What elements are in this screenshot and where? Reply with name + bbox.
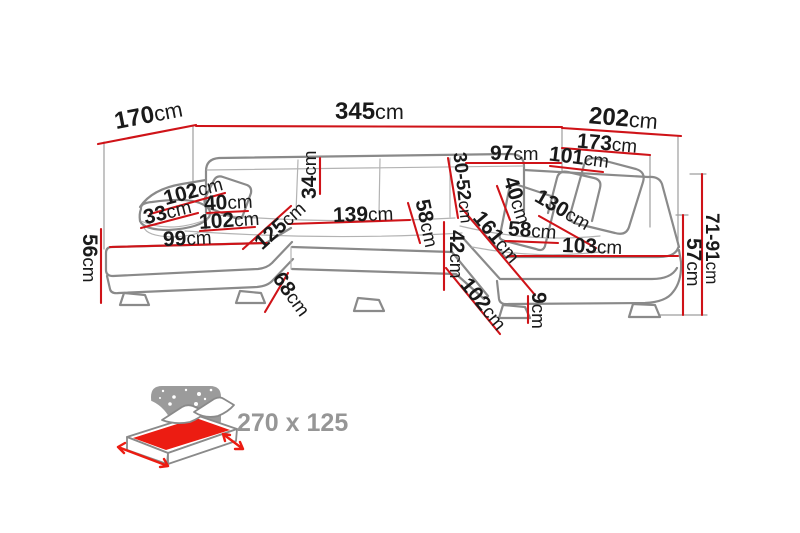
dim-back-cushion: 34cm (298, 150, 321, 199)
sofa-dimension-diagram: 170cm 345cm 202cm 173cm 97cm 101cm 30-52… (0, 0, 800, 533)
dim-center-width: 139cm (333, 202, 394, 227)
dim-back-height-range: 71-91cm (701, 213, 722, 284)
dim-leg-height: 9cm (527, 292, 550, 329)
dimline-total-width (196, 126, 562, 127)
dim-front-height: 42cm (445, 230, 468, 279)
sofa-leg (629, 304, 660, 317)
dim-chaise-front: 99cm (162, 226, 212, 252)
sleeping-area-size: 270 x 125 (237, 409, 348, 437)
sleeping-function-icon (118, 386, 243, 467)
sofa-leg (120, 293, 149, 305)
dim-total-width: 345cm (335, 98, 404, 125)
dim-right-top-width: 97cm (490, 142, 539, 165)
sofa-leg (236, 291, 265, 303)
sofa-leg (354, 298, 384, 311)
dim-right-seat-depth: 58cm (507, 217, 557, 243)
dim-right-chaise-width: 103cm (562, 234, 623, 259)
dim-center-depth: 58cm (410, 197, 443, 249)
dimension-labels: 170cm 345cm 202cm 173cm 97cm 101cm 30-52… (78, 95, 722, 334)
dim-height-left: 56cm (78, 234, 101, 283)
